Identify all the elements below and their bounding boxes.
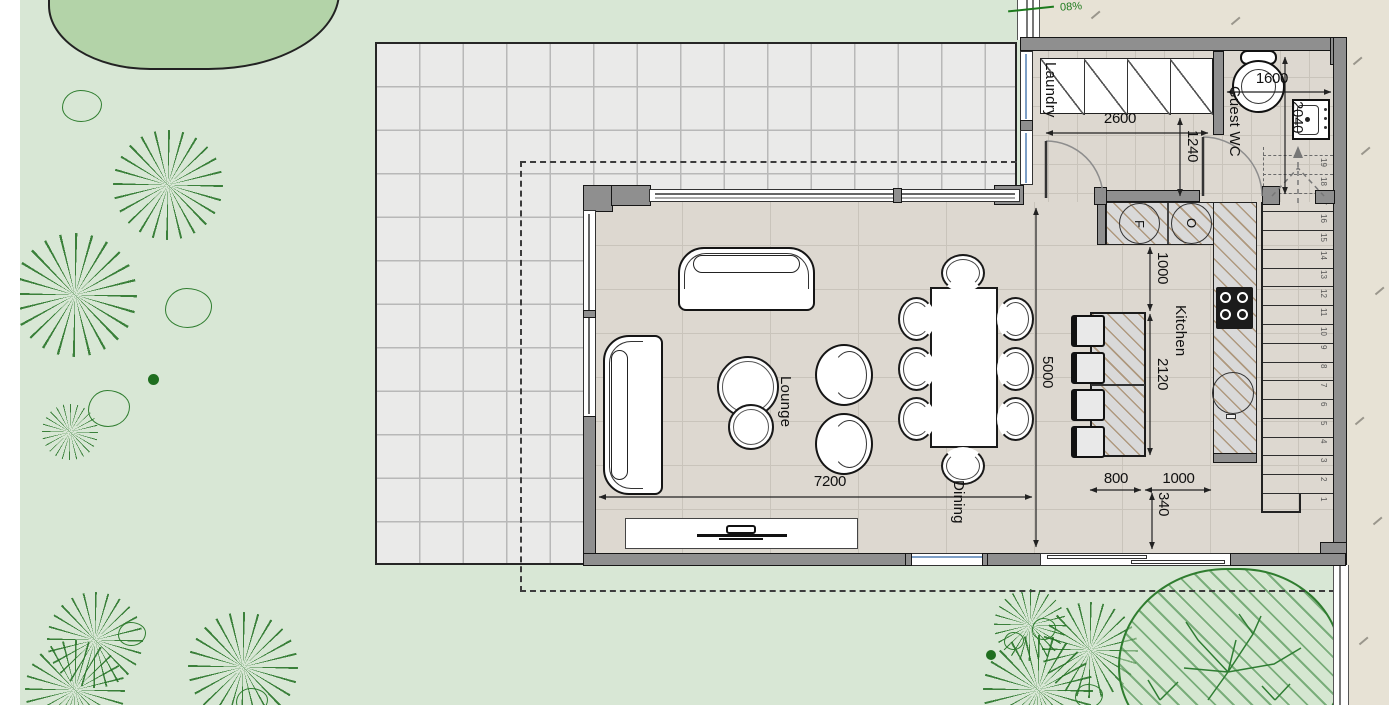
step-number: 7 bbox=[1319, 383, 1328, 387]
stair-tread-dashed bbox=[1263, 174, 1333, 175]
armchair bbox=[815, 413, 873, 475]
stair-tread bbox=[1263, 230, 1333, 231]
basin-dot bbox=[1324, 108, 1327, 111]
step-number: 5 bbox=[1319, 421, 1328, 425]
sofa-horizontal bbox=[678, 247, 815, 311]
wall-bottom bbox=[583, 553, 907, 566]
dining-chair bbox=[898, 397, 935, 441]
wall-bottom-pier bbox=[987, 553, 1042, 566]
bar-stool bbox=[1071, 389, 1105, 421]
dim-wall-offset: 340 bbox=[1155, 492, 1172, 516]
tv-base bbox=[719, 538, 763, 540]
stair-tread-dashed bbox=[1263, 155, 1333, 156]
room-label-dining: Dining bbox=[950, 480, 967, 524]
fence-top-line bbox=[1032, 0, 1034, 40]
plant-starburst bbox=[113, 130, 223, 240]
step-number: 2 bbox=[1319, 477, 1328, 481]
room-label-laundry: Laundry bbox=[1042, 62, 1059, 118]
dining-chair bbox=[997, 397, 1034, 441]
step-number: 1 bbox=[1319, 497, 1328, 501]
burner bbox=[1237, 292, 1248, 303]
dim-counter-to-island: 1000 bbox=[1154, 252, 1171, 284]
stair-tread bbox=[1263, 211, 1333, 212]
kitchen-sink bbox=[1212, 372, 1254, 414]
dim-laundry-width: 2600 bbox=[1085, 110, 1155, 127]
dim-room-depth: 5000 bbox=[1039, 356, 1056, 388]
floor-plan-canvas: F O bbox=[0, 0, 1389, 723]
wall-corner bbox=[611, 185, 651, 206]
dining-chair bbox=[997, 347, 1034, 391]
laundry-unit bbox=[1084, 59, 1128, 115]
burner bbox=[1220, 292, 1231, 303]
burner bbox=[1237, 309, 1248, 320]
step-number: 6 bbox=[1319, 402, 1328, 406]
kitchen-counter-right bbox=[1213, 202, 1257, 463]
fence-bottom-line bbox=[1339, 565, 1341, 705]
counter-end-cap bbox=[1097, 202, 1106, 245]
fence-bottom bbox=[1333, 565, 1349, 705]
tv-body bbox=[726, 525, 756, 534]
wall-wc-divider bbox=[1213, 51, 1224, 135]
sliding-panel bbox=[1047, 555, 1147, 559]
burner bbox=[1220, 309, 1231, 320]
stair-tread bbox=[1263, 437, 1333, 438]
fence-top bbox=[1017, 0, 1040, 40]
window-end-cap bbox=[905, 553, 912, 566]
stair-tread bbox=[1263, 380, 1333, 381]
stair-tread bbox=[1263, 286, 1333, 287]
counter-divider bbox=[1167, 203, 1169, 244]
stair-tread bbox=[1263, 399, 1333, 400]
basin-dot bbox=[1324, 117, 1327, 120]
step-number: 4 bbox=[1319, 439, 1328, 443]
stair-tread bbox=[1263, 455, 1333, 456]
boundary-dashed-left bbox=[520, 161, 522, 592]
window-glass-line bbox=[655, 193, 1015, 195]
dining-chair bbox=[898, 347, 935, 391]
wall-corner bbox=[583, 185, 613, 212]
fridge-circle: F bbox=[1119, 203, 1160, 244]
wall-corner bbox=[1315, 190, 1335, 204]
fridge-label: F bbox=[1132, 220, 1147, 228]
cooktop bbox=[1216, 287, 1253, 329]
wall-left-solid bbox=[583, 416, 596, 566]
stair-landing-line bbox=[1261, 511, 1301, 513]
counter-end-cap bbox=[1213, 453, 1257, 463]
sofa-cushion bbox=[611, 350, 628, 480]
boundary-dashed-top bbox=[520, 161, 1017, 163]
dining-chair bbox=[997, 297, 1034, 341]
step-number: 8 bbox=[1319, 364, 1328, 368]
stair-tread bbox=[1263, 418, 1333, 419]
fence-top-line bbox=[1026, 0, 1028, 40]
laundry-window-glass bbox=[1025, 54, 1027, 119]
page-margin-bottom bbox=[0, 705, 1389, 723]
lounge-top-window bbox=[649, 189, 1020, 202]
small-plant bbox=[986, 650, 996, 660]
sofa-vertical bbox=[603, 335, 663, 495]
basin-dot bbox=[1324, 126, 1327, 129]
step-number: 10 bbox=[1319, 327, 1328, 336]
site-annotation: 08% bbox=[1060, 0, 1083, 14]
neighbour-ground-top bbox=[1040, 0, 1389, 37]
wall-top bbox=[1020, 37, 1345, 51]
window-mullion bbox=[583, 310, 596, 318]
stair-tread bbox=[1263, 249, 1333, 250]
step-number: 19 bbox=[1319, 158, 1328, 167]
armchair bbox=[815, 344, 873, 406]
step-number: 18 bbox=[1319, 177, 1328, 186]
laundry-unit bbox=[1127, 59, 1171, 115]
dim-island-width: 800 bbox=[1090, 470, 1142, 487]
window-glass-line bbox=[655, 197, 1015, 199]
stair-tread bbox=[1263, 362, 1333, 363]
step-number: 11 bbox=[1319, 308, 1328, 316]
dining-chair bbox=[941, 254, 985, 292]
room-label-lounge: Lounge bbox=[777, 376, 794, 427]
stair-tread bbox=[1263, 268, 1333, 269]
small-plant bbox=[148, 374, 159, 385]
dining-table bbox=[930, 287, 998, 448]
wall-pier bbox=[1262, 186, 1280, 205]
bar-stool bbox=[1071, 352, 1105, 384]
stair-tread bbox=[1263, 474, 1333, 475]
oven-label: O bbox=[1184, 218, 1199, 228]
room-label-kitchen: Kitchen bbox=[1172, 305, 1189, 356]
dim-laundry-clear: 1240 bbox=[1184, 130, 1201, 162]
stair-tread bbox=[1263, 343, 1333, 344]
laundry-closet bbox=[1040, 58, 1213, 114]
oven-circle: O bbox=[1171, 203, 1212, 244]
step-number: 9 bbox=[1319, 345, 1328, 349]
stair-tread bbox=[1263, 305, 1333, 306]
step-number: 14 bbox=[1319, 251, 1328, 260]
page-margin-left bbox=[0, 0, 20, 723]
wall-bottom bbox=[1230, 553, 1346, 566]
dim-lounge-width: 7200 bbox=[790, 473, 870, 490]
stair-tread bbox=[1263, 493, 1333, 494]
laundry-unit bbox=[1170, 59, 1213, 115]
stair-tread bbox=[1263, 324, 1333, 325]
sink-tap bbox=[1226, 414, 1236, 419]
dim-island-to-counter: 1000 bbox=[1145, 470, 1212, 487]
bottom-window-glass bbox=[911, 556, 983, 558]
island-divider bbox=[1091, 384, 1145, 386]
laundry-window-glass bbox=[1025, 133, 1027, 183]
bar-stool bbox=[1071, 426, 1105, 458]
bottom-window bbox=[905, 553, 989, 566]
step-number: 15 bbox=[1319, 233, 1328, 242]
step-number: 13 bbox=[1319, 270, 1328, 279]
dining-chair bbox=[898, 297, 935, 341]
tv-line bbox=[697, 534, 787, 537]
dim-wc-depth: 2040 bbox=[1289, 101, 1306, 133]
bar-stool bbox=[1071, 315, 1105, 347]
wall-under-laundry bbox=[1105, 190, 1200, 202]
wall-pier bbox=[1094, 187, 1107, 205]
sofa-cushion bbox=[693, 255, 800, 273]
dim-island-length: 2120 bbox=[1154, 358, 1171, 390]
step-number: 12 bbox=[1319, 289, 1328, 298]
stair-landing-line bbox=[1299, 493, 1301, 511]
coffee-table-small bbox=[728, 404, 774, 450]
wall-right bbox=[1333, 37, 1347, 565]
plant-starburst bbox=[13, 233, 137, 357]
room-label-guest-wc: Guest WC bbox=[1226, 86, 1243, 157]
step-number: 16 bbox=[1319, 214, 1328, 223]
sliding-panel bbox=[1131, 560, 1225, 564]
window-mullion bbox=[893, 188, 902, 203]
dim-wc-width: 1600 bbox=[1240, 70, 1304, 87]
neighbour-ground-right bbox=[1345, 0, 1389, 705]
boundary-dashed-bottom bbox=[520, 590, 1345, 592]
step-number: 3 bbox=[1319, 458, 1328, 462]
